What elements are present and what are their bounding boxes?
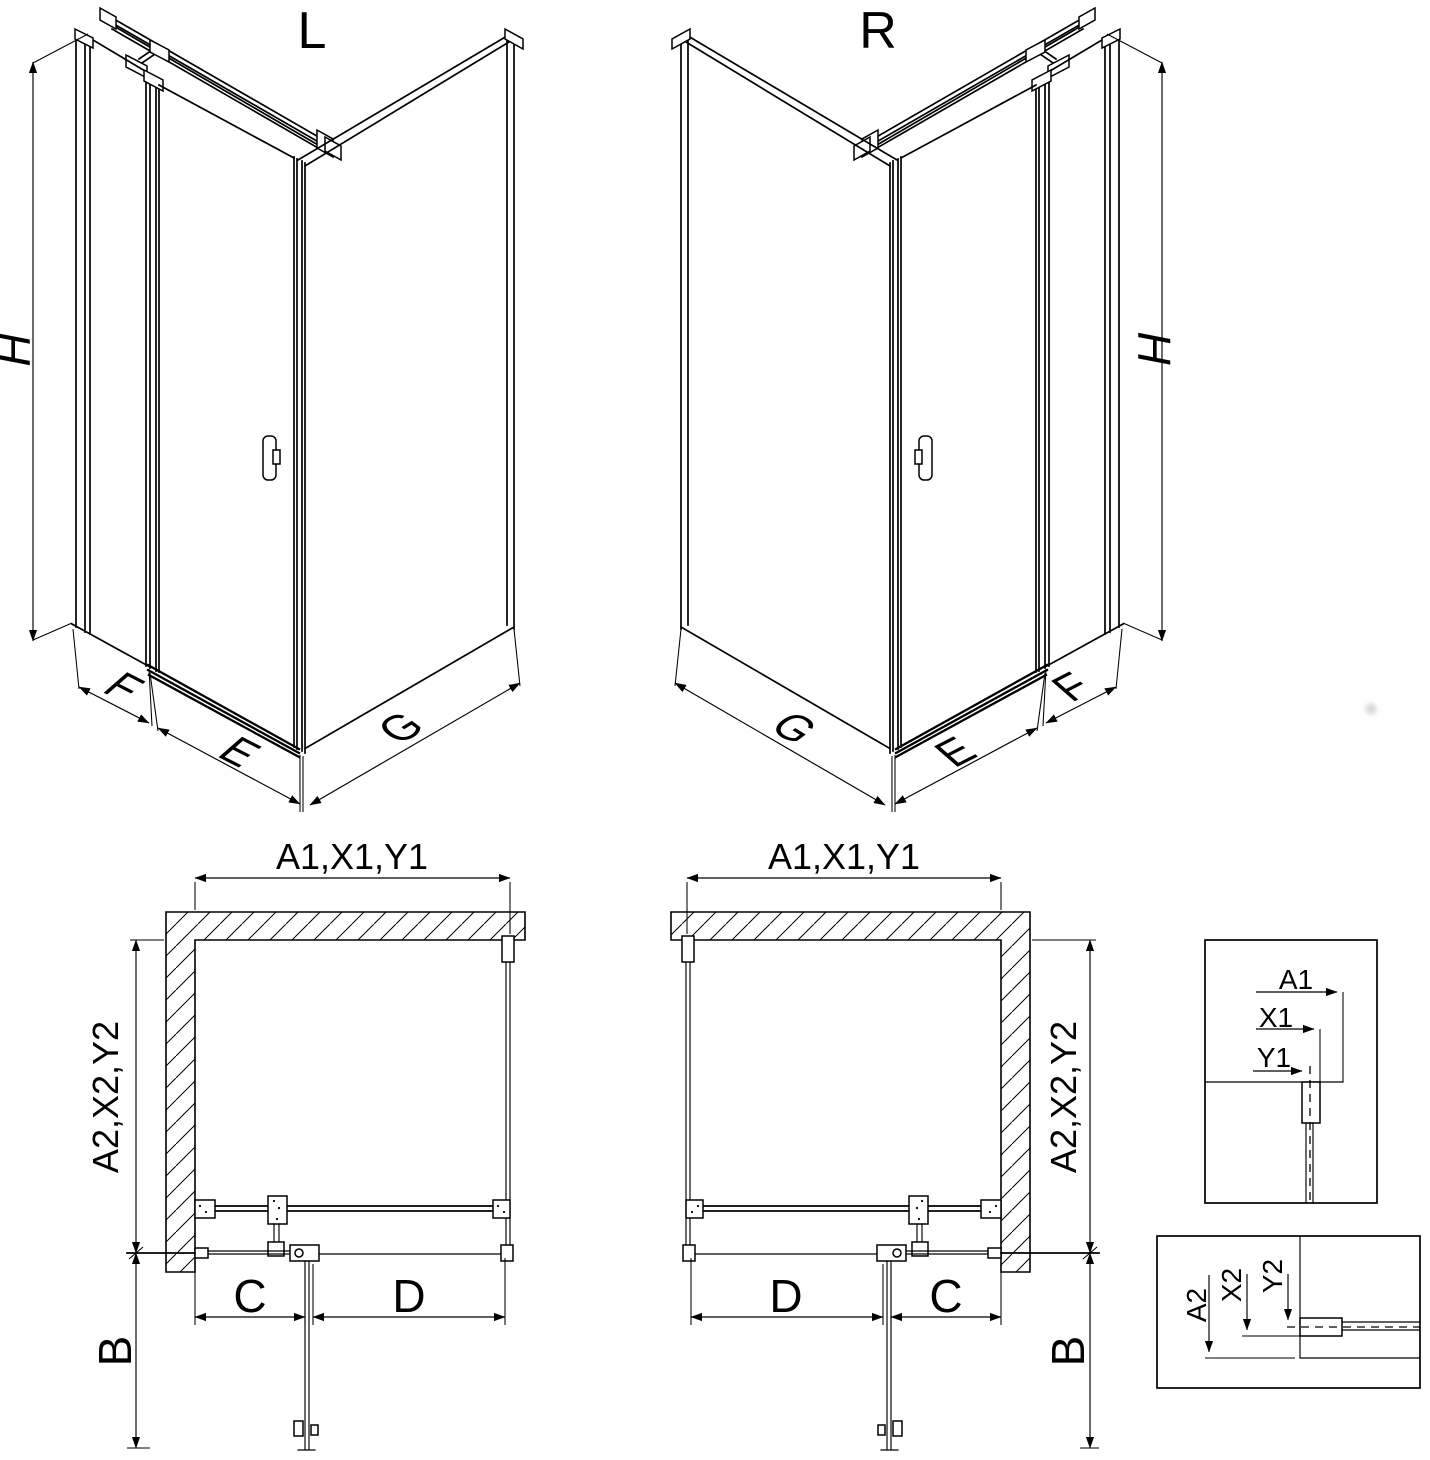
- plan-right-dim-depth-label: A2,X2,Y2: [1043, 1021, 1084, 1173]
- plan-view-right: A1,X1,Y1 A2,X2,Y2 D C B: [671, 836, 1099, 1450]
- iso-right-dim-label-h: H: [1128, 331, 1180, 365]
- plan-left-dim-depth-witness: [129, 940, 164, 1259]
- iso-right-dim-label-g: G: [760, 704, 829, 751]
- plan-right-dim-c-label: C: [929, 1270, 962, 1322]
- plan-left-dim-width-label: A1,X1,Y1: [276, 836, 428, 877]
- iso-left-title: L: [298, 2, 327, 60]
- detail-width-label-a1: A1: [1279, 964, 1313, 995]
- detail-width-ref-lines: [1320, 992, 1343, 1083]
- technical-drawing-page: L H F E G R H G E F A1,X1,Y1 A2,X2,Y2 C …: [0, 0, 1430, 1460]
- plan-right-dim-swing-label: B: [1042, 1336, 1094, 1367]
- detail-box-depth: A2 X2 Y2: [1157, 1236, 1420, 1388]
- plan-left-dim-c-label: C: [233, 1270, 266, 1322]
- detail-width-label-x1: X1: [1259, 1002, 1293, 1033]
- iso-right-dim-label-f: F: [1041, 665, 1102, 710]
- detail-width-label-y1: Y1: [1257, 1042, 1291, 1073]
- detail-depth-partition: [1300, 1236, 1420, 1358]
- iso-right-dim-label-e: E: [924, 729, 987, 775]
- plan-right-dim-width-label: A1,X1,Y1: [768, 836, 920, 877]
- iso-right-title: R: [859, 2, 897, 60]
- plan-right-dim-d-label: D: [769, 1270, 802, 1322]
- iso-left-dim-label-f: F: [93, 665, 154, 710]
- detail-depth-label-x2: X2: [1216, 1268, 1247, 1302]
- iso-view-right: R H G E F: [672, 2, 1180, 812]
- plan-left-walls: [166, 912, 525, 1272]
- detail-depth-label-a2: A2: [1181, 1288, 1212, 1322]
- detail-width-wall-profile: [1302, 1082, 1320, 1123]
- iso-view-left: L H F E G: [0, 2, 523, 812]
- faint-dot-artifact: [1366, 704, 1377, 715]
- detail-depth-glass: [1342, 1322, 1420, 1330]
- iso-left-dim-label-g: G: [367, 704, 436, 751]
- iso-left-dim-label-h: H: [0, 333, 40, 367]
- shower-enclosure-diagram: L H F E G R H G E F A1,X1,Y1 A2,X2,Y2 C …: [0, 0, 1430, 1460]
- plan-left-dim-swing-label: B: [89, 1336, 141, 1367]
- plan-left-dim-depth-label: A2,X2,Y2: [85, 1021, 126, 1173]
- detail-depth-label-y2: Y2: [1257, 1259, 1288, 1293]
- plan-right-walls: [671, 912, 1030, 1272]
- detail-width-glass: [1306, 1123, 1313, 1203]
- iso-left-dim-label-e: E: [208, 729, 271, 775]
- plan-left-dim-d-label: D: [392, 1270, 425, 1322]
- detail-box-width: A1 X1 Y1: [1205, 940, 1377, 1203]
- plan-view-left: A1,X1,Y1 A2,X2,Y2 C D B: [85, 836, 525, 1450]
